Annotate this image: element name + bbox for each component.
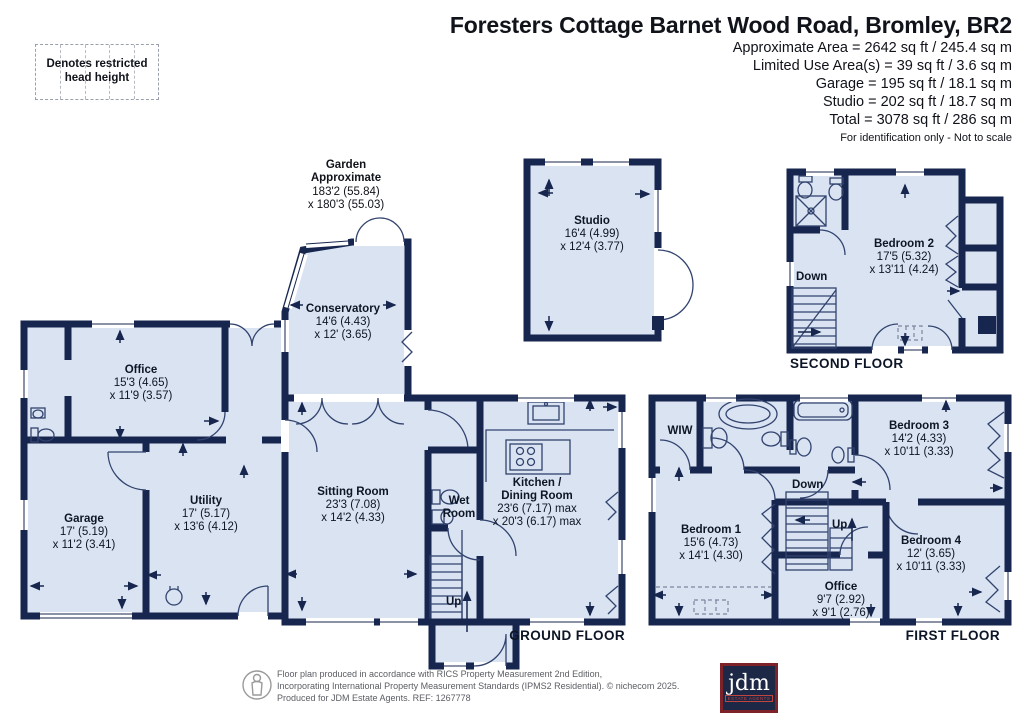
second-floor-label: SECOND FLOOR: [790, 356, 904, 371]
porch: [432, 622, 516, 666]
jdm-logo: jdm ESTATE AGENTS: [720, 663, 778, 713]
studio-area: Studio = 202 sq ft / 18.7 sq m: [450, 93, 1012, 111]
room-label-kitchen: Kitchen / Dining Room23'6 (7.17) max x 2…: [493, 477, 582, 529]
plan-header: Foresters Cottage Barnet Wood Road, Brom…: [450, 12, 1012, 144]
room-label-wiw: WIW: [668, 425, 693, 438]
stairs-up-label-first: Up: [832, 519, 847, 531]
person-icon: [243, 671, 271, 699]
room-label-office-ff: Office9'7 (2.92) x 9'1 (2.76): [812, 581, 869, 620]
restricted-head-height-legend: Denotes restricted head height: [35, 44, 159, 100]
room-label-bedroom2: Bedroom 217'5 (5.32) x 13'11 (4.24): [869, 238, 938, 277]
footer-disclaimer: Floor plan produced in accordance with R…: [277, 668, 679, 705]
page-title: Foresters Cottage Barnet Wood Road, Brom…: [450, 12, 1012, 39]
room-label-sitting-room: Sitting Room23'3 (7.08) x 14'2 (4.33): [317, 486, 389, 525]
ground-floor-label: GROUND FLOOR: [509, 628, 625, 643]
room-label-bedroom4: Bedroom 412' (3.65) x 10'11 (3.33): [896, 535, 965, 574]
room-label-utility: Utility17' (5.17) x 13'6 (4.12): [174, 495, 238, 534]
room-label-garage: Garage17' (5.19) x 11'2 (3.41): [53, 513, 116, 552]
room-label-wet-room: Wet Room: [443, 495, 476, 521]
jdm-logo-text: jdm: [728, 674, 770, 694]
jdm-logo-subtext: ESTATE AGENTS: [725, 695, 774, 702]
first-floor-label: FIRST FLOOR: [906, 628, 1000, 643]
legend-text: Denotes restricted head height: [47, 58, 148, 86]
garden-label: Garden Approximate 183'2 (55.84) x 180'3…: [308, 159, 384, 212]
garage-area: Garage = 195 sq ft / 18.1 sq m: [450, 75, 1012, 93]
room-label-bedroom3: Bedroom 314'2 (4.33) x 10'11 (3.33): [884, 420, 953, 459]
stairs-down-label-first: Down: [792, 479, 823, 491]
approximate-area: Approximate Area = 2642 sq ft / 245.4 sq…: [450, 39, 1012, 57]
stairs-up-label-ground: Up: [446, 596, 461, 608]
identification-note: For identification only - Not to scale: [450, 132, 1012, 144]
room-label-conservatory: Conservatory14'6 (4.43) x 12' (3.65): [306, 303, 380, 342]
floorplan-page: Foresters Cottage Barnet Wood Road, Brom…: [0, 0, 1020, 721]
stairs-down-label-second: Down: [796, 271, 827, 283]
limited-use-area: Limited Use Area(s) = 39 sq ft / 3.6 sq …: [450, 57, 1012, 75]
total-area: Total = 3078 sq ft / 286 sq m: [450, 111, 1012, 129]
room-label-studio: Studio16'4 (4.99) x 12'4 (3.77): [560, 215, 624, 254]
room-label-office-gf: Office15'3 (4.65) x 11'9 (3.57): [110, 364, 173, 403]
room-label-bedroom1: Bedroom 115'6 (4.73) x 14'1 (4.30): [679, 524, 743, 563]
